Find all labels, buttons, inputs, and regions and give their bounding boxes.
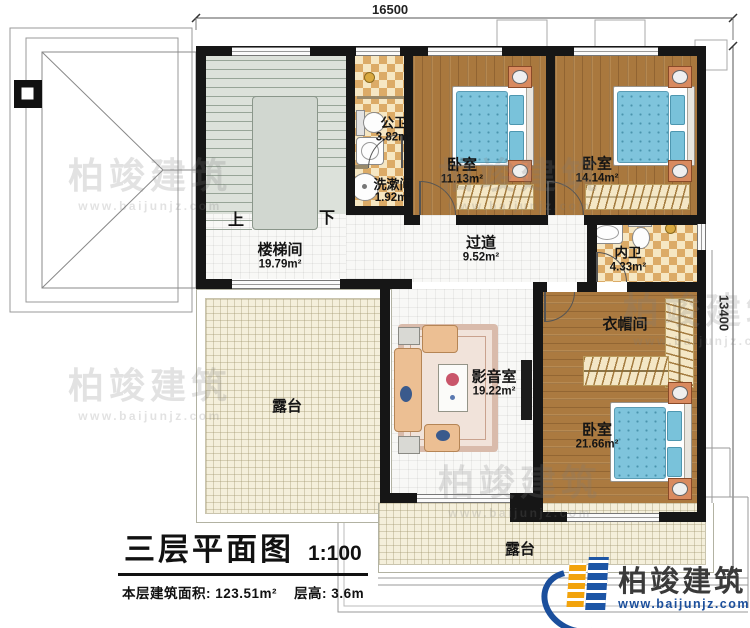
plan-floor-height: 层高: 3.6m — [294, 586, 364, 601]
wall-segment — [533, 512, 567, 522]
window — [428, 47, 502, 56]
pillow — [670, 131, 685, 161]
window — [232, 47, 310, 56]
wall-segment — [346, 46, 355, 215]
label-hallway: 过道 9.52m² — [463, 236, 499, 265]
wall-segment — [196, 279, 232, 289]
pillow — [509, 131, 524, 161]
side-table — [398, 327, 420, 345]
room-area: 19.22m² — [471, 386, 516, 398]
label-public-bath: 公卫 3.82m² — [376, 117, 412, 144]
bath-partition — [355, 165, 368, 169]
label-terrace-bottom: 露台 — [505, 542, 535, 558]
room-name: 露台 — [505, 542, 535, 558]
room-area: 21.66m² — [576, 439, 619, 451]
wall-segment — [584, 215, 706, 225]
label-bedroom2: 卧室 14.14m² — [576, 157, 619, 186]
wardrobe-bedroom1 — [456, 184, 534, 210]
label-washroom: 洗漱间 1.92m² — [373, 178, 412, 204]
label-ensuite: 内卫 4.33m² — [610, 247, 646, 274]
staircase — [204, 56, 346, 214]
room-area: 4.33m² — [610, 261, 646, 273]
logo-tower-blue — [585, 557, 609, 610]
wall-segment — [390, 493, 417, 503]
wall-segment — [533, 282, 543, 522]
nightstand — [508, 160, 532, 182]
sink-bowl — [595, 225, 619, 240]
plan-subtitle: 本层建筑面积: 123.51m² 层高: 3.6m — [118, 582, 368, 602]
window — [567, 513, 659, 522]
room-name: 卧室 — [576, 423, 619, 439]
window — [574, 47, 658, 56]
wall-segment — [380, 289, 390, 503]
basin-drain — [362, 184, 367, 189]
wall-segment — [340, 279, 412, 289]
hall-floor-left — [346, 215, 412, 289]
title-block: 三层平面图 1:100 本层建筑面积: 123.51m² 层高: 3.6m — [118, 524, 368, 602]
window — [697, 224, 706, 250]
room-name: 楼梯间 — [257, 243, 302, 259]
room-area: 19.79m² — [257, 259, 302, 271]
label-stairwell: 楼梯间 19.79m² — [257, 243, 302, 272]
dimension-top: 16500 — [372, 2, 408, 17]
person-figure — [400, 386, 412, 402]
headboard — [526, 87, 533, 165]
dimension-right: 13400 — [717, 295, 732, 331]
pillow — [670, 95, 685, 125]
plan-area: 本层建筑面积: 123.51m² — [122, 586, 277, 601]
closet-rack-right — [665, 298, 694, 388]
door-leaf — [419, 181, 421, 215]
room-area: 1.92m² — [373, 192, 412, 204]
mattress — [617, 91, 669, 163]
wall-segment — [456, 215, 548, 225]
pillow — [667, 447, 682, 477]
wall-segment — [627, 282, 706, 292]
bed-bedroom2 — [613, 86, 695, 166]
headboard — [684, 403, 691, 481]
mattress — [456, 91, 508, 163]
room-name: 卧室 — [576, 157, 619, 173]
room-name: 内卫 — [610, 247, 646, 262]
sliding-door-window — [417, 494, 510, 503]
logo-building-icon — [538, 553, 618, 625]
room-area: 3.82m² — [376, 131, 412, 143]
door-leaf — [544, 292, 546, 322]
mattress — [614, 407, 666, 479]
label-bedroom1: 卧室 11.13m² — [441, 158, 483, 187]
title-row: 三层平面图 1:100 — [118, 524, 368, 576]
armchair — [422, 325, 458, 353]
nightstand — [668, 66, 692, 88]
room-area: 14.14m² — [576, 173, 619, 185]
room-name: 露台 — [272, 399, 302, 415]
room-area: 9.52m² — [463, 252, 499, 264]
side-table — [398, 436, 420, 454]
label-cloakroom: 衣帽间 — [602, 317, 647, 333]
closet-rack-bottom — [583, 356, 669, 386]
plan-scale: 1:100 — [308, 542, 362, 566]
nightstand — [668, 382, 692, 404]
coffee-table — [438, 364, 468, 412]
window — [232, 280, 340, 289]
wall-segment — [196, 46, 206, 289]
room-name: 衣帽间 — [602, 317, 647, 333]
nightstand — [668, 160, 692, 182]
floor-plan-canvas: 楼梯间 19.79m² 公卫 3.82m² 洗漱间 1.92m² 卧室 11.1… — [0, 0, 750, 628]
nightstand — [508, 66, 532, 88]
bed-bedroom1 — [452, 86, 534, 166]
pillow — [667, 411, 682, 441]
room-name: 过道 — [463, 236, 499, 252]
door-leaf — [547, 181, 549, 215]
logo-company-name: 柏竣建筑 — [618, 567, 750, 597]
room-name: 洗漱间 — [373, 178, 412, 192]
logo-text: 柏竣建筑 www.baijunjz.com — [618, 567, 750, 611]
window — [356, 47, 400, 56]
wall-segment — [577, 282, 597, 292]
shower-fixture-icon — [364, 72, 375, 83]
room-name: 卧室 — [441, 158, 483, 174]
label-media-room: 影音室 19.22m² — [471, 370, 516, 399]
wardrobe-bedroom2 — [585, 184, 690, 210]
stair-landing — [252, 96, 318, 230]
door-leaf — [596, 252, 598, 282]
plan-title: 三层平面图 — [124, 524, 294, 569]
wall-segment — [346, 206, 412, 215]
pillow — [509, 95, 524, 125]
room-area: 11.13m² — [441, 174, 483, 186]
logo-website: www.baijunjz.com — [618, 597, 750, 611]
stairs-down-label: 下 — [319, 204, 335, 228]
bed-bedroom3 — [610, 402, 692, 482]
room-name: 公卫 — [376, 117, 412, 132]
nightstand — [668, 478, 692, 500]
person-figure — [436, 430, 450, 441]
tv-screen — [521, 360, 532, 420]
wall-segment — [404, 215, 420, 225]
label-bedroom3: 卧室 21.66m² — [576, 423, 619, 452]
room-name: 影音室 — [471, 370, 516, 386]
logo-tower-yellow — [566, 563, 586, 607]
company-logo: 柏竣建筑 www.baijunjz.com — [538, 552, 750, 626]
label-terrace-left: 露台 — [272, 399, 302, 415]
wall-segment — [510, 493, 533, 522]
stairs-up-label: 上 — [228, 206, 244, 230]
wall-segment — [659, 512, 706, 522]
shower-partition — [357, 96, 404, 99]
headboard — [687, 87, 694, 165]
